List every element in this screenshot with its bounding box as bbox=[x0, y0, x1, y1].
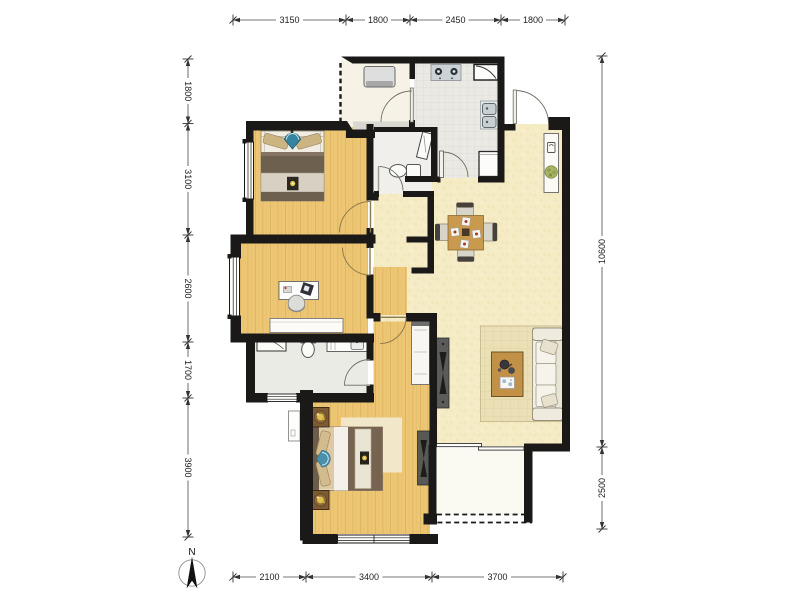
svg-text:2500: 2500 bbox=[597, 478, 607, 498]
svg-text:10600: 10600 bbox=[597, 239, 607, 264]
svg-text:2600: 2600 bbox=[183, 278, 193, 298]
svg-text:1800: 1800 bbox=[368, 15, 388, 25]
svg-text:3400: 3400 bbox=[359, 572, 379, 582]
svg-text:3900: 3900 bbox=[183, 457, 193, 477]
svg-text:1700: 1700 bbox=[183, 360, 193, 380]
svg-text:2450: 2450 bbox=[445, 15, 465, 25]
svg-text:1800: 1800 bbox=[183, 81, 193, 101]
svg-text:3700: 3700 bbox=[487, 572, 507, 582]
svg-text:2100: 2100 bbox=[259, 572, 279, 582]
svg-text:3100: 3100 bbox=[183, 169, 193, 189]
svg-text:N: N bbox=[188, 547, 195, 558]
svg-text:1800: 1800 bbox=[523, 15, 543, 25]
svg-text:3150: 3150 bbox=[279, 15, 299, 25]
